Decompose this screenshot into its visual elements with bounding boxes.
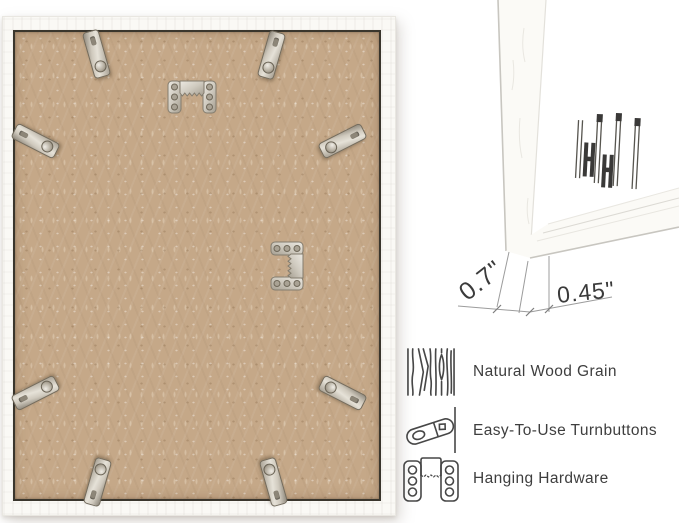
sawtooth-hanger-icon: [269, 241, 305, 291]
feature-row-wood-grain: Natural Wood Grain: [402, 348, 617, 396]
feature-row-turnbuttons: Easy-To-Use Turnbuttons: [402, 406, 657, 456]
feature-label: Hanging Hardware: [473, 470, 609, 488]
feature-row-hanging-hardware: Hanging Hardware: [402, 454, 609, 504]
depth-dimension-label: 0.7": [454, 255, 509, 306]
product-infographic: 0.7" 0.45": [0, 0, 679, 523]
frame-corner-photo: 0.7" 0.45": [440, 0, 679, 330]
wood-board-logo-icon: [575, 111, 641, 189]
face-dimension-label: 0.45": [556, 276, 616, 308]
dimension-ticks: [493, 305, 553, 316]
frame-back-photo: [2, 16, 396, 516]
turnbutton-icon: [402, 406, 460, 456]
hanging-hardware-icon: [402, 454, 460, 504]
feature-label: Easy-To-Use Turnbuttons: [473, 422, 657, 440]
feature-label: Natural Wood Grain: [473, 363, 617, 381]
sawtooth-hanger-icon: [167, 79, 217, 115]
wood-grain-icon: [402, 348, 460, 396]
